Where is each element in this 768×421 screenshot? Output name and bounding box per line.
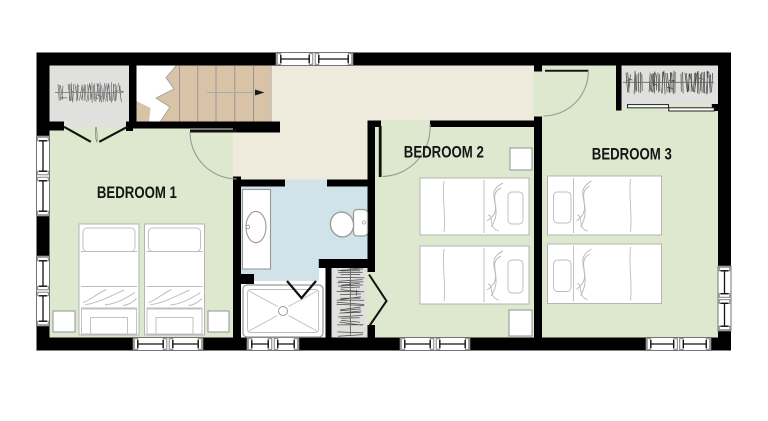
svg-text:BEDROOM 2: BEDROOM 2	[404, 142, 484, 161]
svg-text:BEDROOM 3: BEDROOM 3	[592, 144, 672, 163]
svg-text:BEDROOM 1: BEDROOM 1	[97, 183, 177, 202]
